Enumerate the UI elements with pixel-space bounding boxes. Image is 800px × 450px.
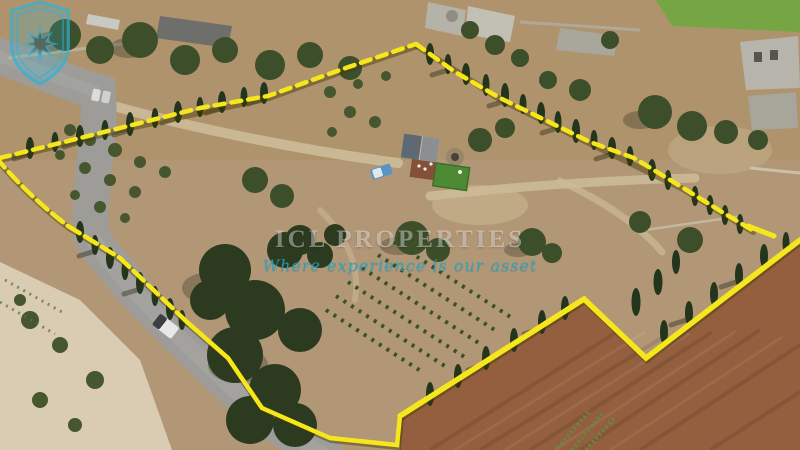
patio [409, 159, 435, 180]
aerial-scene [0, 0, 800, 450]
solar-roof [401, 134, 422, 160]
farmhouse [401, 134, 440, 163]
aerial-property-photo: ICL PROPERTIES Where experience is our a… [0, 0, 800, 450]
lawn [433, 163, 470, 191]
hut-roof-hole [451, 153, 459, 161]
